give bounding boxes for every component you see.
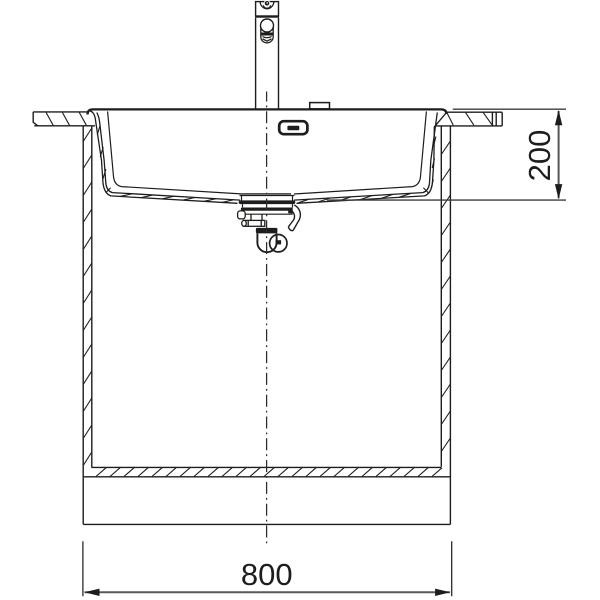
svg-text:800: 800 <box>241 557 293 592</box>
svg-text:200: 200 <box>522 130 557 182</box>
